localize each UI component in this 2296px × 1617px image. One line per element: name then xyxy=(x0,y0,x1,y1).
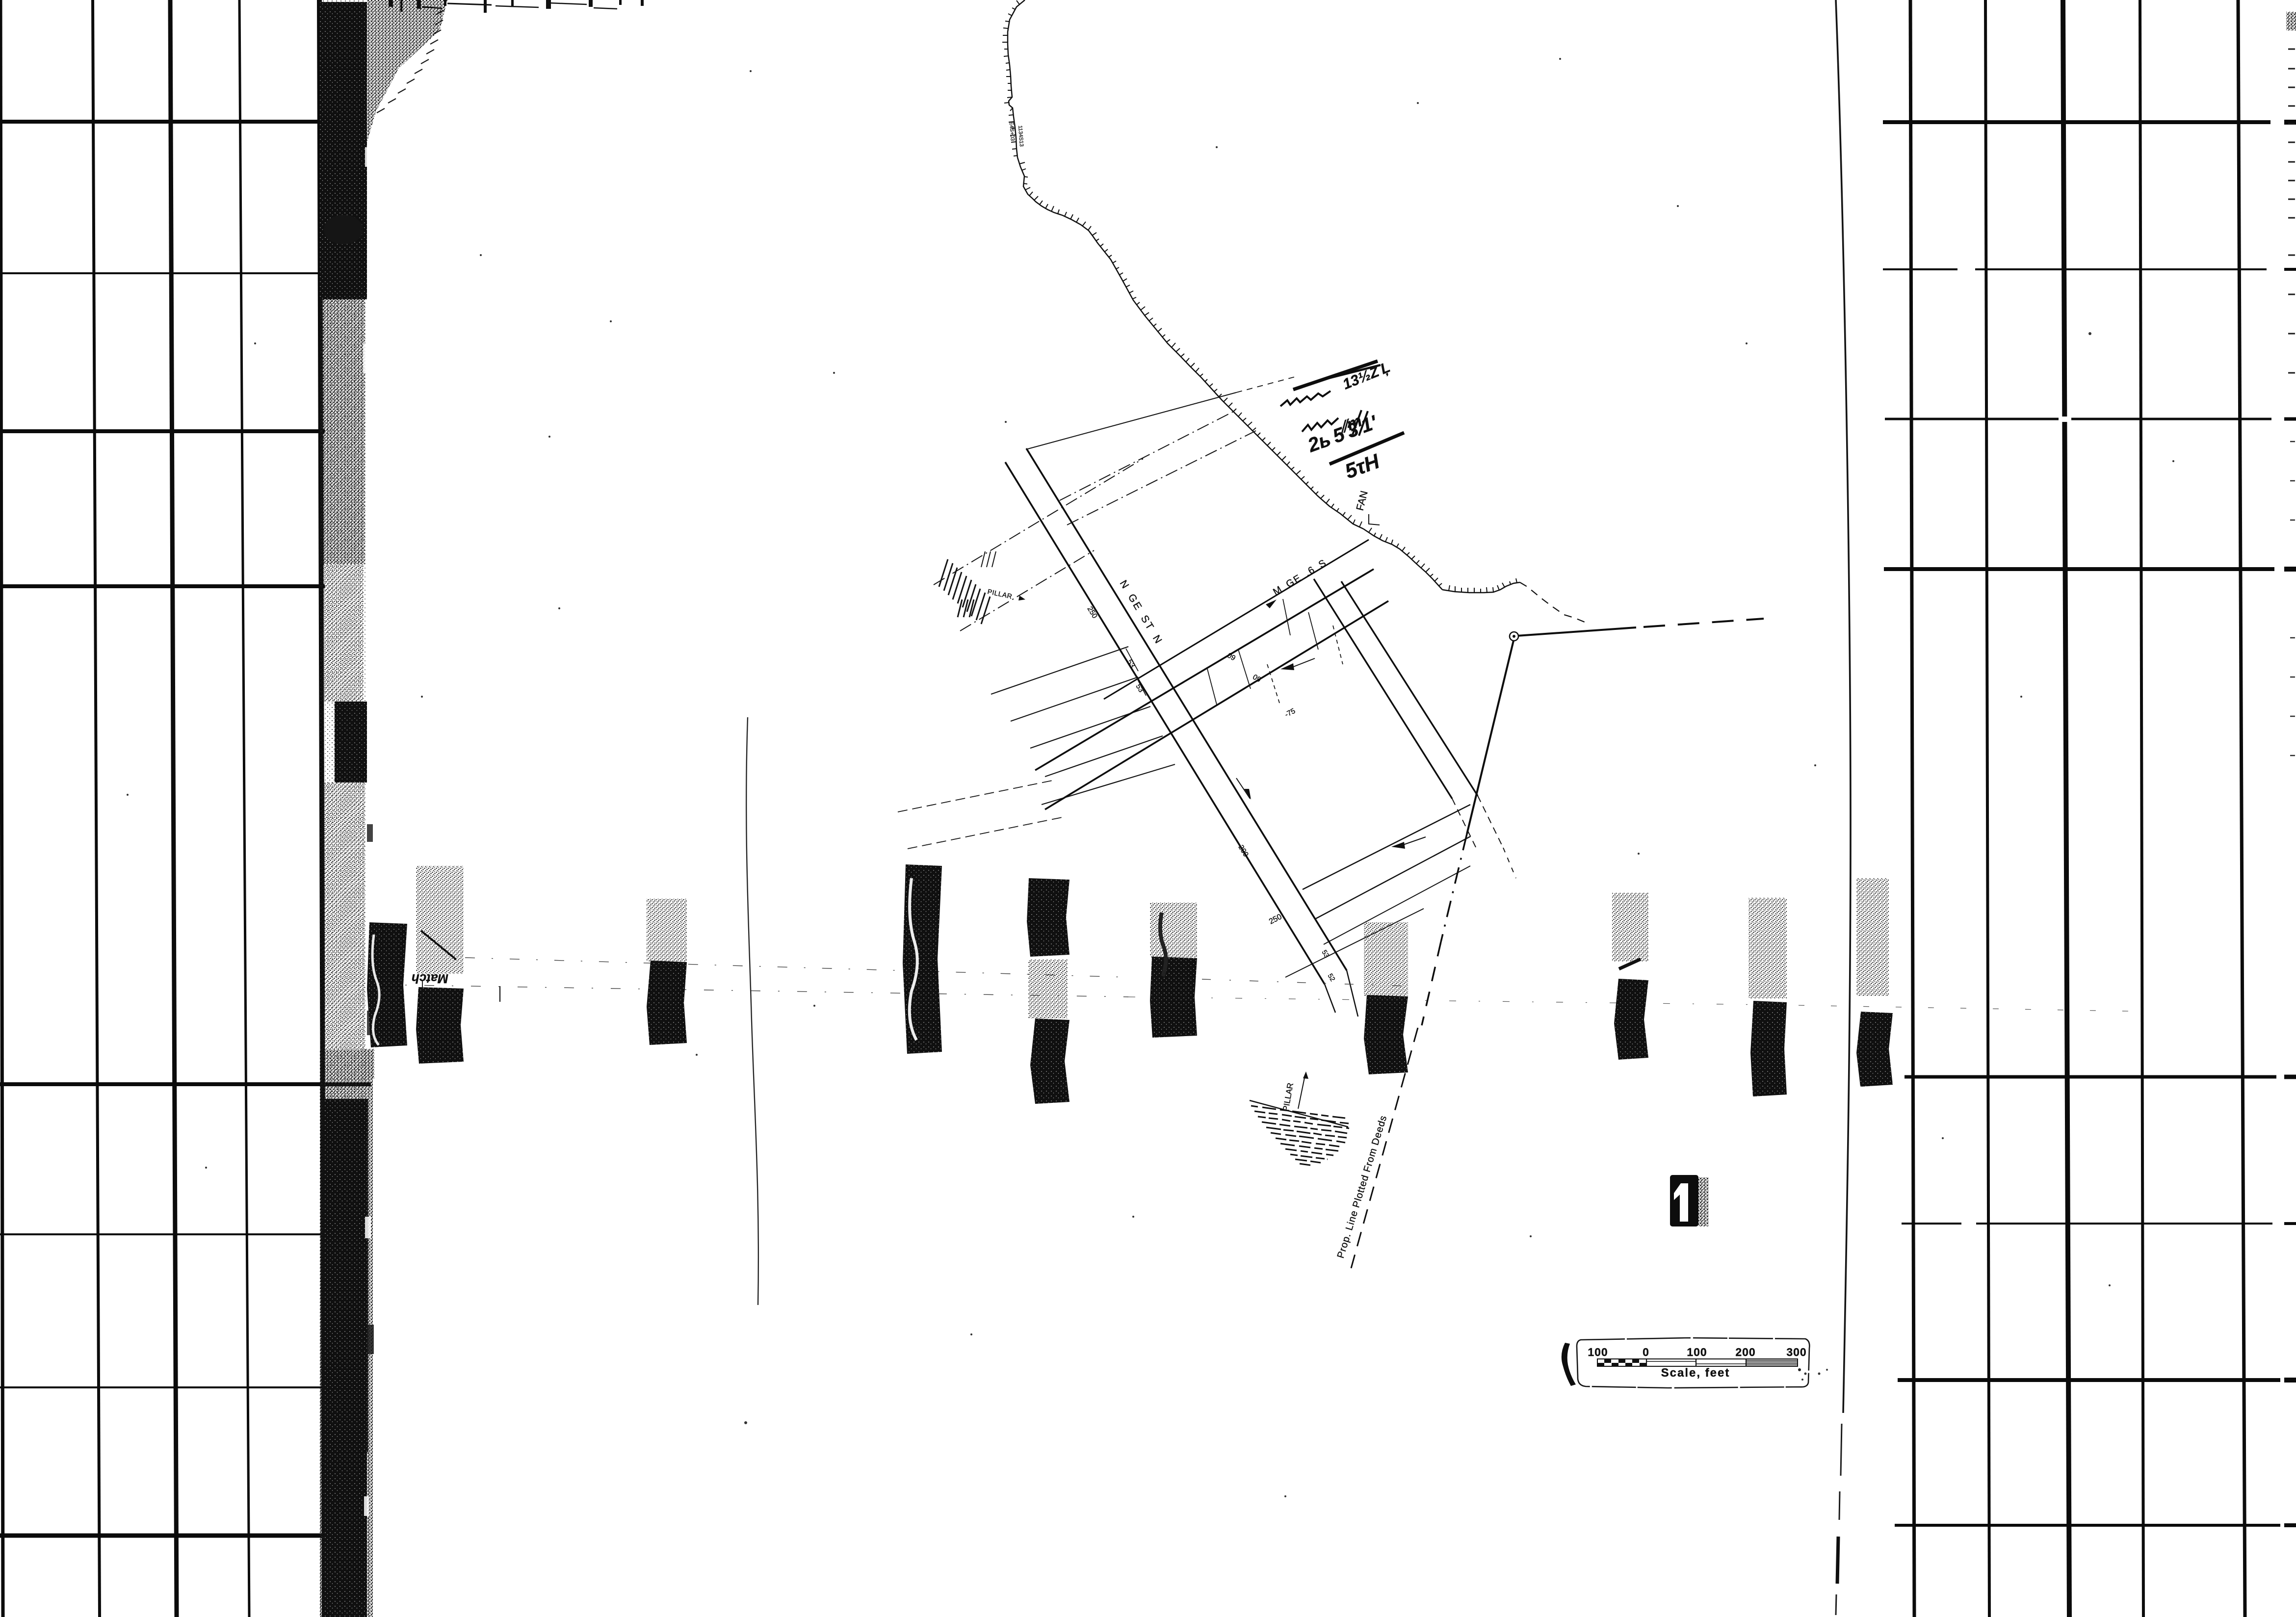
svg-text:200: 200 xyxy=(1735,1346,1755,1358)
svg-text:100: 100 xyxy=(1687,1346,1707,1358)
svg-text:0: 0 xyxy=(1643,1346,1649,1358)
svg-text:Match: Match xyxy=(412,971,448,986)
svg-text:Scale, feet: Scale, feet xyxy=(1661,1366,1730,1380)
svg-text:300: 300 xyxy=(1786,1346,1806,1358)
svg-text:100: 100 xyxy=(1588,1346,1608,1358)
